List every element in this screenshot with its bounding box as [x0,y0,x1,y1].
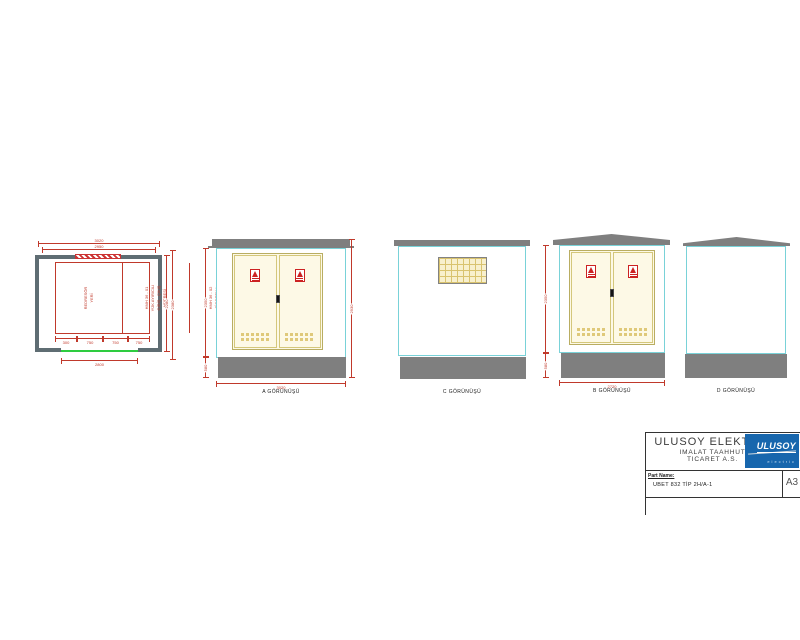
view-c: C GÖRÜNÜŞÜ [394,238,534,398]
plan-cell-giris-cikis-1: HMH 36 - 01 YÜK AYIRICILI GİRİŞ - ÇIKIŞ … [123,263,190,333]
view-c-label: C GÖRÜNÜŞÜ [398,389,526,395]
dimension-plan-bottom: 2800 [61,360,138,361]
double-doors [232,253,323,350]
door-handle [276,295,280,303]
part-name-value: UBET 832 TİP 2H/A-1 [653,482,713,488]
dimension-value: 2800 [94,363,105,367]
door-vent-slots [619,328,646,336]
view-b: 2350 580 2720 B GÖRÜNÜŞÜ [545,233,675,398]
dimension-value: 2930 [350,303,354,314]
plan-top-opening-hatch [75,254,121,259]
warning-triangle-icon [297,271,303,277]
title-block: ULUSOY ELEKTRIK IMALAT TAAHHUT TICARET A… [645,432,800,522]
plan-wall-bottom-right [138,348,162,352]
high-voltage-warning-icon [295,269,305,282]
ulusoy-logo: ULUSOY electric [745,434,799,468]
dimension-b-base-height: 580 [545,353,546,378]
dimension-plan-chain-3: 750 [103,338,128,339]
dimension-a-width: 3020 [216,383,346,384]
title-block-border [645,470,800,471]
dimension-value: 2280 [165,298,169,309]
plan-cell-table: REDRESÖR YERİ HMH 36 - 01 YÜK AYIRICILI … [55,262,150,334]
warning-text-line [630,274,637,275]
dimension-plan-top-inner: 2950 [42,249,156,250]
foundation-base [218,357,346,378]
dimension-value: 2380 [171,300,175,311]
dimension-value: 2350 [544,294,548,305]
door-leaf-left [234,255,277,348]
warning-text-line [588,274,595,275]
sheet-size: A3 [784,477,800,488]
view-a: 2350 580 2930 3020 A GÖRÜNÜŞÜ [205,238,360,398]
warning-text-line [296,280,303,281]
view-d-label: D GÖRÜNÜŞÜ [686,388,786,394]
dimension-plan-chain-2: 750 [77,338,103,339]
dimension-value: 300 [62,341,71,345]
title-block-border [782,470,783,497]
dimension-plan-right-outer: 2380 [172,250,173,360]
foundation-base [685,354,787,378]
dimension-value: 2950 [94,245,105,249]
ventilation-louver-grille [438,257,487,284]
warning-triangle-icon [588,267,594,273]
view-d: D GÖRÜNÜŞÜ [683,236,793,396]
high-voltage-warning-icon [628,265,638,278]
door-leaf-right [279,255,322,348]
dimension-b-width: 2720 [559,382,665,383]
title-block-border [645,432,800,433]
dimension-plan-chain-4: 750 [128,338,150,339]
door-leaf-right [613,252,653,343]
high-voltage-warning-icon [586,265,596,278]
dimension-a-base-height: 580 [205,357,206,378]
plan-view: 3020 2950 REDRESÖR YERİ HMH 36 - 01 YÜK … [30,238,185,373]
dimension-a-total-height: 2930 [351,239,352,378]
warning-text-line [252,278,259,279]
plan-wall-bottom-left [35,348,61,352]
door-handle [610,289,614,297]
roof-slab [212,239,350,246]
dimension-value: 750 [135,341,144,345]
dimension-value: 580 [204,363,208,372]
foundation-base [400,357,526,379]
dimension-value: 750 [86,341,95,345]
dimension-plan-right-inner: 2280 [166,255,167,352]
plan-door-opening-line [61,350,138,352]
warning-triangle-icon [252,271,258,277]
dimension-b-body-height: 2350 [545,245,546,353]
drawing-sheet: 3020 2950 REDRESÖR YERİ HMH 36 - 01 YÜK … [0,0,800,640]
double-doors [569,250,655,345]
high-voltage-warning-icon [250,269,260,282]
dimension-a-body-height: 2350 [205,248,206,357]
warning-text-line [252,280,259,281]
title-block-border [645,432,646,515]
plan-wall-left [35,255,39,352]
door-vent-slots [241,333,270,341]
plan-cell-redresor: REDRESÖR YERİ [56,263,123,333]
logo-subtext: electric [767,459,796,464]
kiosk-body [686,246,786,354]
view-b-label: B GÖRÜNÜŞÜ [559,388,665,394]
dimension-value: 3020 [94,239,105,243]
warning-text-line [296,278,303,279]
door-leaf-left [571,252,611,343]
view-a-label: A GÖRÜNÜŞÜ [216,389,346,395]
pitched-roof [553,234,670,245]
dimension-value: 750 [111,341,120,345]
warning-triangle-icon [630,267,636,273]
foundation-base [561,353,665,378]
dimension-value: 2350 [204,297,208,308]
door-vent-slots [577,328,604,336]
logo-wordmark: ULUSOY [757,441,796,453]
door-vent-slots [285,333,314,341]
title-block-border [645,497,800,498]
warning-text-line [630,276,637,277]
warning-text-line [588,276,595,277]
dimension-plan-chain-1: 300 [55,338,77,339]
plan-cell-text: REDRESÖR YERİ [83,265,95,331]
pitched-roof [683,237,790,246]
dimension-value: 580 [544,361,548,370]
part-name-label: Part Name: [648,473,674,479]
